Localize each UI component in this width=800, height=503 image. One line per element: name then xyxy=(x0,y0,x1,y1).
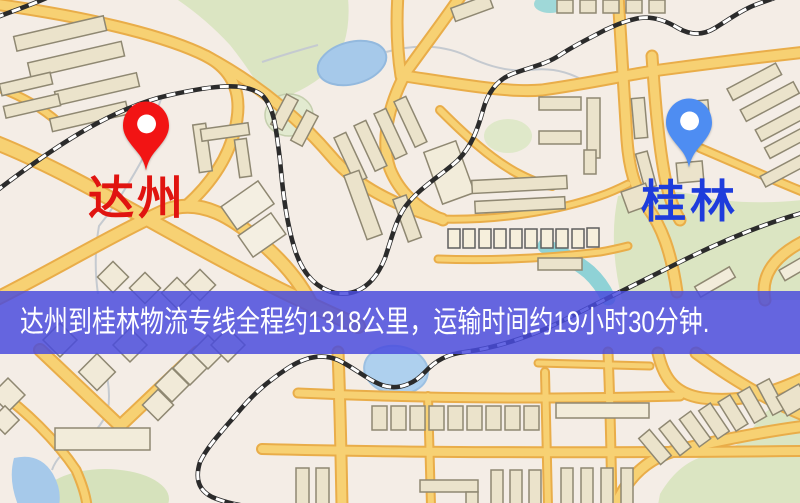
destination-label: 桂林 xyxy=(641,179,739,224)
map-screenshot: 达州 桂林 达州到桂林物流专线全程约1318公里，运输时间约19小时30分钟. xyxy=(0,0,800,503)
destination-pin-icon xyxy=(666,99,712,168)
destination-pin[interactable] xyxy=(666,98,712,168)
origin-label: 达州 xyxy=(88,175,186,221)
route-info-banner: 达州到桂林物流专线全程约1318公里，运输时间约19小时30分钟. xyxy=(0,291,800,354)
map-canvas[interactable] xyxy=(0,0,800,503)
origin-pin-hole xyxy=(137,114,156,133)
origin-pin-icon xyxy=(123,102,169,171)
route-info-text: 达州到桂林物流专线全程约1318公里，运输时间约19小时30分钟. xyxy=(0,308,709,338)
origin-pin[interactable] xyxy=(123,101,169,171)
destination-pin-hole xyxy=(680,111,699,130)
